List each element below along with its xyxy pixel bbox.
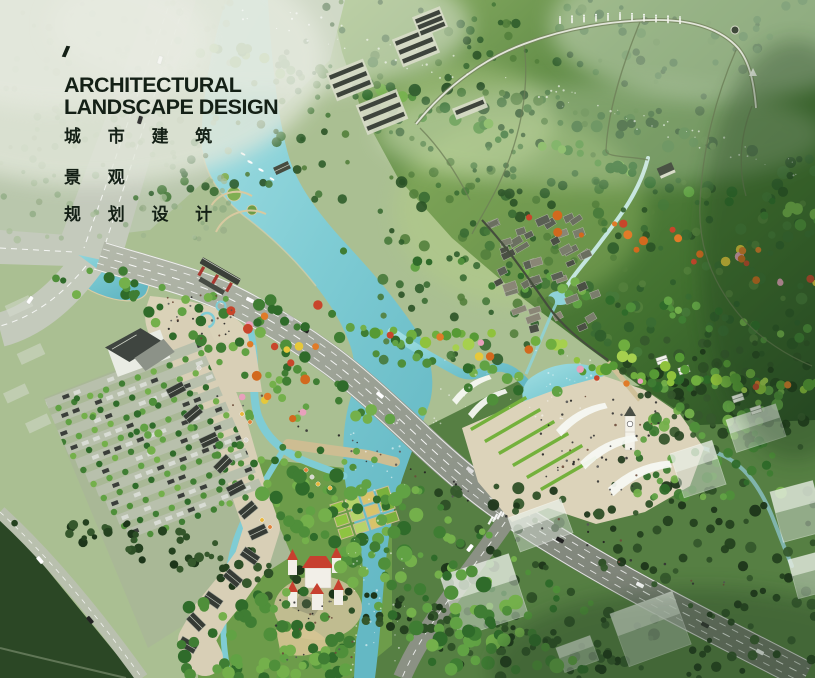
subtitle-cn-2: 景 观 bbox=[64, 163, 136, 188]
masterplan-rendering: ARCHITECTURAL LANDSCAPE DESIGN 城 市 建 筑 景… bbox=[0, 0, 815, 678]
subtitle-cn-1: 城 市 建 筑 bbox=[64, 122, 223, 147]
lake-island bbox=[227, 187, 241, 201]
subtitle-cn-3: 规 划 设 计 bbox=[64, 200, 223, 225]
title-line-2: LANDSCAPE DESIGN bbox=[64, 96, 278, 118]
hilltop-pavilion bbox=[731, 26, 739, 34]
title-line-1: ARCHITECTURAL bbox=[64, 74, 241, 96]
